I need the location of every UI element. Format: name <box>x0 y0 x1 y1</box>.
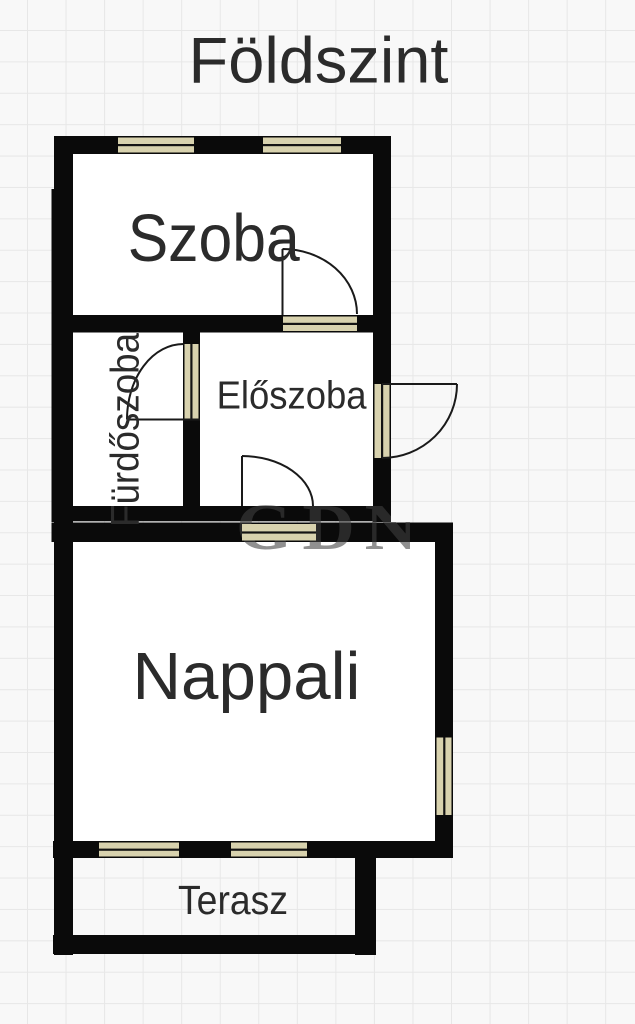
svg-text:Nappali: Nappali <box>133 639 361 714</box>
svg-text:Földszint: Földszint <box>189 24 449 97</box>
svg-text:Előszoba: Előszoba <box>217 375 368 418</box>
svg-text:Terasz: Terasz <box>178 877 288 923</box>
svg-text:Fürdőszoba: Fürdőszoba <box>104 332 148 527</box>
svg-text:Szoba: Szoba <box>128 201 301 276</box>
